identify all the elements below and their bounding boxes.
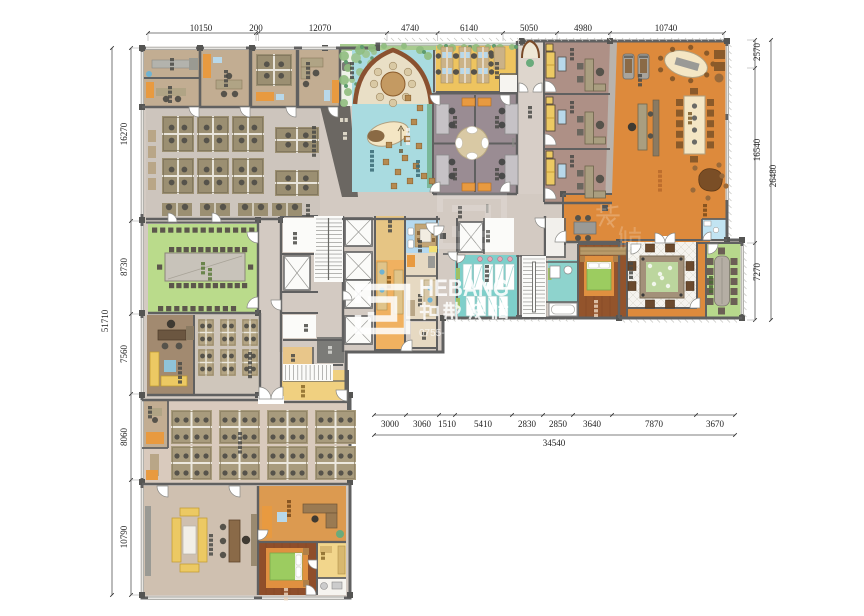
svg-text:16270: 16270 (119, 122, 129, 145)
svg-text:16540: 16540 (752, 138, 762, 161)
svg-text:4980: 4980 (574, 23, 593, 33)
svg-text:8060: 8060 (119, 428, 129, 447)
svg-text:2830: 2830 (518, 419, 537, 429)
svg-text:5050: 5050 (520, 23, 539, 33)
svg-text:26480: 26480 (768, 164, 778, 187)
svg-text:6140: 6140 (460, 23, 479, 33)
svg-text:2570: 2570 (752, 43, 762, 62)
svg-text:7870: 7870 (645, 419, 664, 429)
svg-text:3060: 3060 (413, 419, 432, 429)
svg-text:10790: 10790 (119, 525, 129, 548)
svg-text:7270: 7270 (752, 263, 762, 282)
svg-text:3000: 3000 (381, 419, 400, 429)
svg-text:34540: 34540 (543, 438, 566, 448)
svg-text:10150: 10150 (190, 23, 213, 33)
svg-text:2850: 2850 (549, 419, 568, 429)
svg-text:3640: 3640 (583, 419, 602, 429)
svg-text:10740: 10740 (655, 23, 678, 33)
svg-text:7560: 7560 (119, 345, 129, 364)
svg-text:200: 200 (249, 23, 263, 33)
svg-text:HEBANG: HEBANG (419, 275, 509, 302)
svg-text:3670: 3670 (706, 419, 725, 429)
svg-text:51710: 51710 (100, 309, 110, 332)
svg-text:1510: 1510 (438, 419, 457, 429)
svg-text:12070: 12070 (309, 23, 332, 33)
svg-text:0755-8: 0755-8 (419, 328, 451, 339)
svg-text:4740: 4740 (401, 23, 420, 33)
svg-text:5410: 5410 (474, 419, 493, 429)
svg-text:8730: 8730 (119, 258, 129, 277)
